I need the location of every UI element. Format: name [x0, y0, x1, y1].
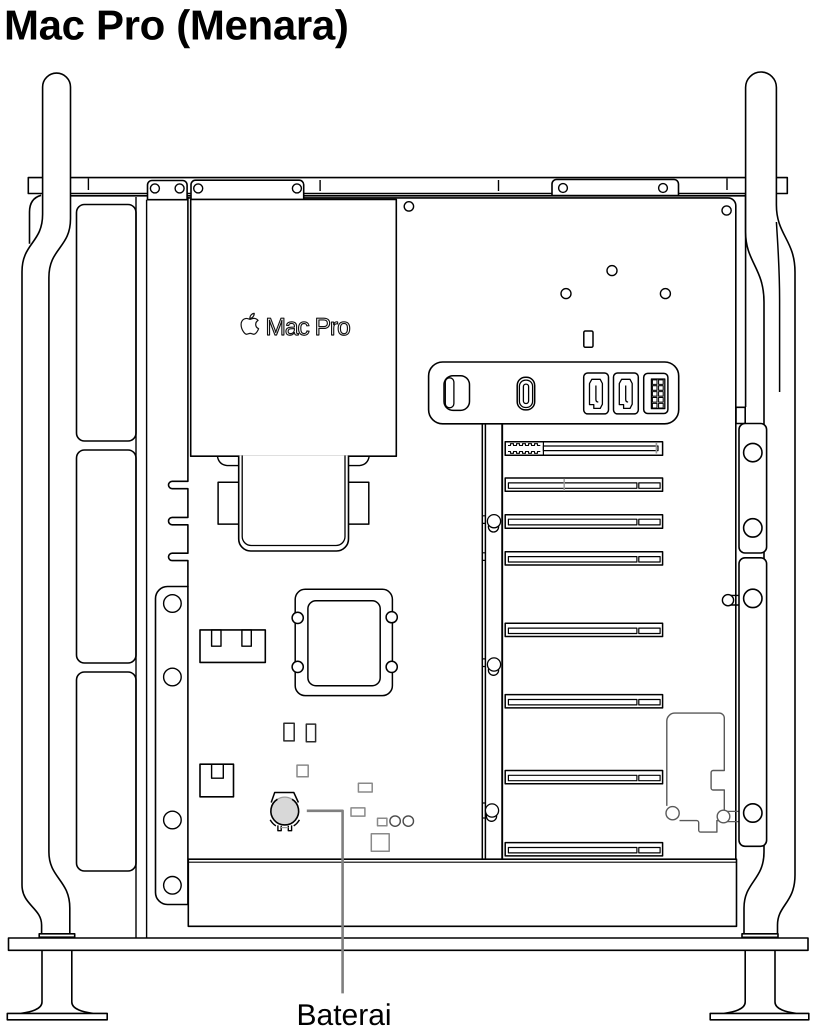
svg-text:Baterai: Baterai [297, 999, 392, 1029]
svg-text:Mac Pro (Menara): Mac Pro (Menara) [4, 1, 349, 48]
svg-text:Mac Pro: Mac Pro [266, 314, 351, 341]
